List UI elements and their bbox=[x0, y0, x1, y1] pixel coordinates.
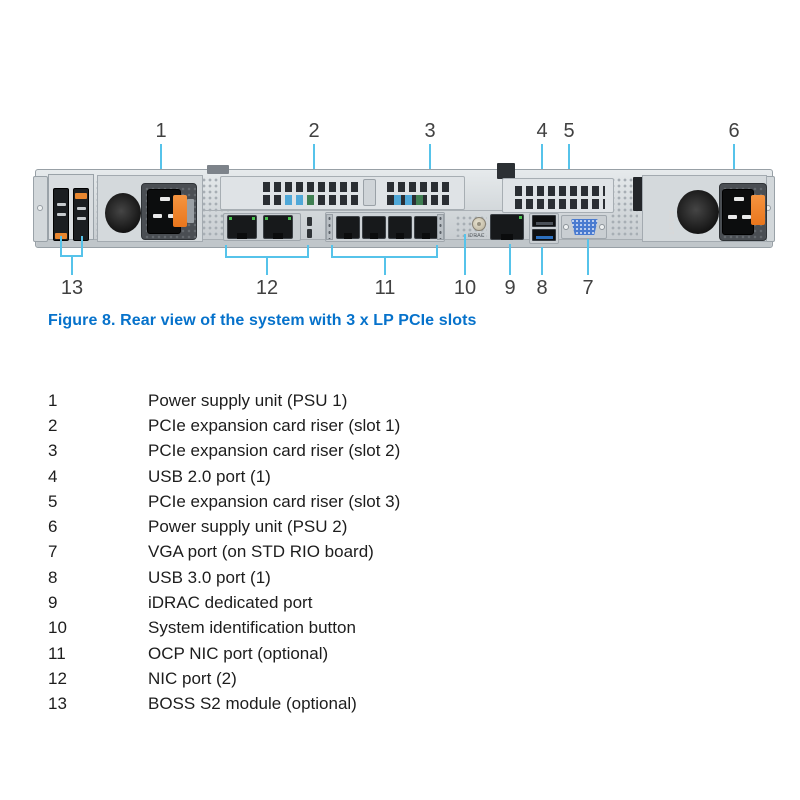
legend-row: 1 Power supply unit (PSU 1) bbox=[48, 388, 568, 413]
riser2-pcb-accent bbox=[416, 195, 423, 205]
usb-3-port bbox=[532, 229, 556, 241]
callout-number-13: 13 bbox=[61, 277, 83, 299]
riser2-pcb-accent bbox=[405, 195, 412, 205]
nic-port-1-led bbox=[229, 217, 232, 220]
usb-3-tongue bbox=[536, 236, 553, 239]
boss-slot-2-label bbox=[77, 217, 86, 220]
ocp-nic-port-2 bbox=[362, 216, 386, 239]
psu2-wattage-label: 1400W bbox=[669, 193, 676, 235]
callout-number-5: 5 bbox=[563, 120, 574, 142]
legend-number: 9 bbox=[48, 593, 148, 613]
ocp-nic-port-4 bbox=[414, 216, 438, 239]
callout-number-2: 2 bbox=[308, 120, 319, 142]
boss-s2-module bbox=[48, 174, 94, 240]
legend-number: 10 bbox=[48, 618, 148, 638]
legend-description: PCIe expansion card riser (slot 1) bbox=[148, 416, 568, 436]
callout-stem-13 bbox=[71, 255, 73, 275]
legend-row: 4 USB 2.0 port (1) bbox=[48, 464, 568, 489]
riser2-vents-row1 bbox=[387, 182, 449, 192]
legend-row: 12 NIC port (2) bbox=[48, 666, 568, 691]
legend-row: 3 PCIe expansion card riser (slot 2) bbox=[48, 439, 568, 464]
inlet-pin bbox=[734, 197, 744, 201]
vga-screw-left bbox=[563, 224, 569, 230]
idrac-port bbox=[490, 214, 524, 240]
legend-number: 5 bbox=[48, 492, 148, 512]
callout-number-12: 12 bbox=[256, 277, 278, 299]
riser1-pcb-accent bbox=[285, 195, 292, 205]
legend-row: 6 Power supply unit (PSU 2) bbox=[48, 514, 568, 539]
legend-number: 6 bbox=[48, 517, 148, 537]
ocp-cage-latch-right bbox=[437, 214, 444, 240]
callout-line-10 bbox=[464, 234, 466, 275]
usb-2-tongue bbox=[536, 222, 553, 225]
legend-row: 2 PCIe expansion card riser (slot 1) bbox=[48, 413, 568, 438]
left-ear-screw bbox=[37, 205, 43, 211]
boss-slot-1-label bbox=[57, 203, 66, 206]
psu2-power-inlet bbox=[722, 189, 754, 235]
document-page: 1 2 3 4 5 6 bbox=[0, 0, 800, 800]
legend-number: 13 bbox=[48, 694, 148, 714]
legend-number: 12 bbox=[48, 669, 148, 689]
psu1-clip bbox=[187, 199, 194, 223]
legend-row: 13 BOSS S2 module (optional) bbox=[48, 692, 568, 717]
legend-number: 1 bbox=[48, 391, 148, 411]
legend-row: 8 USB 3.0 port (1) bbox=[48, 565, 568, 590]
riser1-vents-row1 bbox=[263, 182, 361, 192]
legend-description: Power supply unit (PSU 2) bbox=[148, 517, 568, 537]
psu1-release-tab bbox=[173, 195, 187, 227]
legend-description: OCP NIC port (optional) bbox=[148, 644, 568, 664]
nic-port-2-led bbox=[265, 217, 268, 220]
boss-slot-1 bbox=[53, 188, 69, 241]
legend-row: 11 OCP NIC port (optional) bbox=[48, 641, 568, 666]
legend-description: VGA port (on STD RIO board) bbox=[148, 542, 568, 562]
boss-slot-2-label bbox=[77, 207, 86, 210]
vga-port bbox=[571, 219, 598, 235]
boss-slot-1-label bbox=[57, 213, 66, 216]
legend-number: 3 bbox=[48, 441, 148, 461]
nic-port-1 bbox=[227, 215, 257, 239]
nic-indicator-glyph bbox=[307, 217, 312, 226]
riser1-pcb-accent bbox=[307, 195, 314, 205]
inlet-pin bbox=[160, 197, 170, 201]
ocp-nic-port-1 bbox=[336, 216, 360, 239]
legend-description: BOSS S2 module (optional) bbox=[148, 694, 568, 714]
legend-row: 7 VGA port (on STD RIO board) bbox=[48, 540, 568, 565]
server-rear-illustration: iDRAC 1400W bbox=[35, 169, 773, 248]
legend-description: NIC port (2) bbox=[148, 669, 568, 689]
psu2-release-tab bbox=[751, 195, 765, 225]
system-id-button bbox=[472, 217, 486, 231]
callout-line-7 bbox=[587, 239, 589, 275]
riser1-pcb-accent bbox=[296, 195, 303, 205]
boss-slot-2-orange-tab bbox=[75, 193, 87, 199]
callout-number-6: 6 bbox=[728, 120, 739, 142]
boss-slot-2 bbox=[73, 188, 89, 241]
legend-row: 5 PCIe expansion card riser (slot 3) bbox=[48, 489, 568, 514]
legend-row: 9 iDRAC dedicated port bbox=[48, 590, 568, 615]
chassis-top-tab bbox=[207, 165, 229, 174]
nic-indicator-glyph bbox=[307, 229, 312, 238]
chassis-top-latch bbox=[497, 163, 515, 179]
ocp-cage-latch-left bbox=[326, 214, 333, 240]
legend-row: 10 System identification button bbox=[48, 616, 568, 641]
callout-number-10: 10 bbox=[454, 277, 476, 299]
riser2-pcb-accent bbox=[394, 195, 401, 205]
legend-number: 8 bbox=[48, 568, 148, 588]
vga-screw-right bbox=[599, 224, 605, 230]
callout-stem-12 bbox=[266, 256, 268, 275]
legend-description: Power supply unit (PSU 1) bbox=[148, 391, 568, 411]
callout-line-13 bbox=[60, 236, 62, 257]
idrac-port-label: iDRAC bbox=[468, 233, 485, 239]
callout-line-13 bbox=[81, 236, 83, 257]
callout-number-8: 8 bbox=[536, 277, 547, 299]
callout-number-4: 4 bbox=[536, 120, 547, 142]
nic-port-1-led bbox=[252, 217, 255, 220]
psu1-velcro-strap bbox=[105, 193, 141, 233]
riser-bay-latch bbox=[363, 179, 376, 206]
callout-number-7: 7 bbox=[582, 277, 593, 299]
legend-description: USB 3.0 port (1) bbox=[148, 568, 568, 588]
legend-number: 7 bbox=[48, 542, 148, 562]
legend-number: 4 bbox=[48, 467, 148, 487]
legend-description: System identification button bbox=[148, 618, 568, 638]
inlet-pin bbox=[153, 214, 162, 218]
idrac-port-led bbox=[519, 216, 522, 219]
psu2-velcro-strap bbox=[677, 190, 719, 234]
ocp-nic-port-3 bbox=[388, 216, 412, 239]
inlet-pin bbox=[728, 215, 737, 219]
nic-port-2-led bbox=[288, 217, 291, 220]
callout-stem-11 bbox=[384, 256, 386, 275]
callout-line-8 bbox=[541, 247, 543, 275]
inlet-pin bbox=[742, 215, 751, 219]
legend-number: 11 bbox=[48, 644, 148, 664]
callout-number-9: 9 bbox=[504, 277, 515, 299]
legend-description: PCIe expansion card riser (slot 3) bbox=[148, 492, 568, 512]
callout-number-1: 1 bbox=[155, 120, 166, 142]
legend-list: 1 Power supply unit (PSU 1) 2 PCIe expan… bbox=[48, 388, 568, 717]
callout-number-11: 11 bbox=[375, 277, 396, 299]
figure-caption: Figure 8. Rear view of the system with 3… bbox=[48, 312, 477, 330]
riser3-vents-row1 bbox=[515, 186, 605, 196]
legend-description: iDRAC dedicated port bbox=[148, 593, 568, 613]
nic-port-2 bbox=[263, 215, 293, 239]
callout-line-9 bbox=[509, 244, 511, 275]
legend-description: PCIe expansion card riser (slot 2) bbox=[148, 441, 568, 461]
callout-number-3: 3 bbox=[424, 120, 435, 142]
riser3-vents-row2 bbox=[515, 199, 605, 209]
legend-number: 2 bbox=[48, 416, 148, 436]
usb-2-port bbox=[532, 215, 556, 227]
legend-description: USB 2.0 port (1) bbox=[148, 467, 568, 487]
